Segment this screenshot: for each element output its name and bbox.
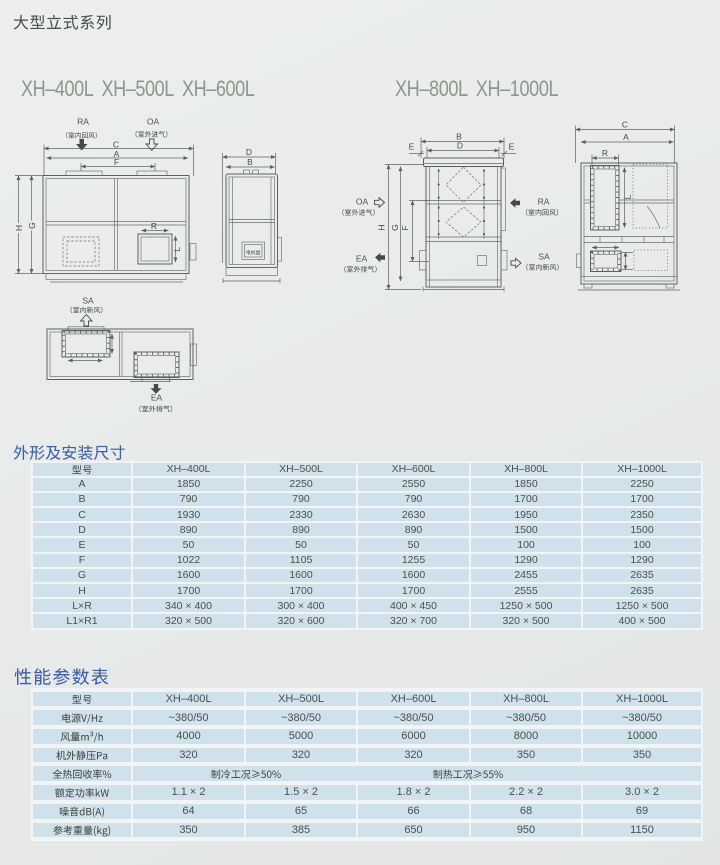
svg-text:OA: OA [356,197,369,207]
svg-text:E: E [409,142,415,152]
svg-text:A: A [623,132,629,142]
svg-text:OA: OA [147,117,160,127]
svg-text:R: R [151,221,157,231]
svg-text:H: H [377,224,387,230]
svg-text:E: E [509,142,515,152]
svg-text:EA: EA [151,393,163,403]
svg-text:R: R [602,148,608,158]
svg-text:C: C [113,140,119,150]
svg-text:SA: SA [538,252,550,262]
svg-text:D: D [246,147,252,157]
svg-text:G: G [27,222,37,229]
svg-text:F: F [114,157,119,167]
svg-text:D: D [457,141,463,151]
svg-text:EA: EA [356,254,368,264]
svg-text:C: C [622,120,628,130]
svg-text:L: L [172,247,182,252]
svg-text:G: G [390,224,400,231]
svg-text:B: B [247,157,253,167]
svg-text:RA: RA [77,117,89,127]
svg-text:H: H [14,225,24,231]
svg-text:SA: SA [82,296,94,306]
svg-text:L: L [623,194,633,199]
svg-text:F: F [400,225,410,230]
svg-text:RA: RA [538,197,550,207]
